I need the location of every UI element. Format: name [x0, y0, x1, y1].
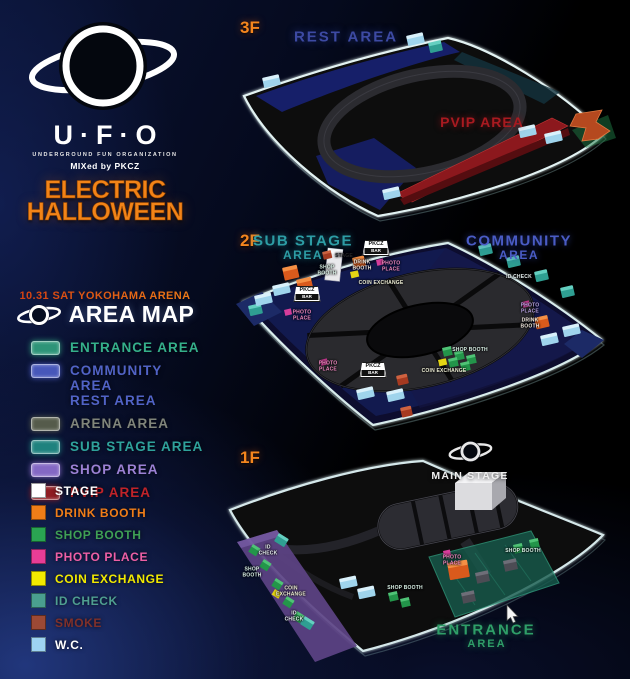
map-label: SHOP BOOTH [317, 265, 336, 276]
pvip-area-label: PVIP AREA [440, 114, 524, 130]
pkcz-bar-chip: PKCZBAR [294, 286, 321, 302]
floor-2f-map [230, 232, 630, 442]
map-label: DRINK BOOTH [352, 260, 371, 271]
map-label: PHOTO PLACE [319, 361, 338, 372]
map-label: PHOTO PLACE [382, 261, 401, 272]
floor-1f-label: 1F [240, 448, 260, 468]
pkcz-bar-chip-top: PKCZ [361, 363, 386, 370]
entrance-area-label-line2: AREA [467, 638, 506, 650]
map-label: SHOP BOOTH [242, 567, 261, 578]
map-label: ID CHECK [506, 275, 532, 281]
pkcz-bar-chip-top: PKCZ [364, 241, 389, 248]
event-area-map-poster: U·F·O UNDERGROUND FUN ORGANIZATION MIXed… [0, 0, 630, 679]
map-label: PHOTO PLACE [443, 555, 462, 566]
community-area-label-line2: AREA [499, 248, 539, 262]
rest-area-label: REST AREA [294, 29, 398, 46]
planet-icon [447, 438, 493, 465]
map-label: PHOTO PLACE [521, 303, 540, 314]
pkcz-bar-chip-bottom: BAR [365, 248, 388, 254]
sub-stage-area-label-line1: SUB STAGE [253, 233, 353, 250]
sub-stage-area-label-line2: AREA [283, 248, 323, 262]
map-label: COIN EXCHANGE [276, 586, 306, 597]
floor-maps: 3F 2F 1F REST AREA PVIP AREA SUB STAGE A… [0, 0, 630, 679]
floor-1f-map [225, 445, 630, 670]
map-label: COIN EXCHANGE [359, 281, 404, 287]
pkcz-bar-chip-bottom: BAR [362, 370, 385, 376]
main-stage-label: MAIN STAGE [431, 470, 508, 482]
map-label: STAGE [335, 254, 353, 260]
pkcz-bar-chip-top: PKCZ [295, 287, 320, 294]
map-label: PHOTO PLACE [293, 310, 312, 321]
map-label: DRINK BOOTH [520, 318, 539, 329]
pkcz-bar-chip: PKCZBAR [360, 362, 387, 378]
community-area-label-line1: COMMUNITY [466, 233, 572, 250]
map-label: ID CHECK [259, 545, 278, 556]
map-label: SHOP BOOTH [505, 549, 541, 555]
map-label: COIN EXCHANGE [422, 369, 467, 375]
floor-3f-label: 3F [240, 18, 260, 38]
entrance-area-label-line1: ENTRANCE [436, 622, 535, 639]
main-stage-marker: MAIN STAGE [431, 438, 508, 482]
cursor-icon [507, 605, 518, 623]
pkcz-bar-chip-bottom: BAR [296, 294, 319, 300]
map-label: SHOP BOOTH [452, 348, 488, 354]
floor-3f-map [230, 18, 630, 223]
map-label: ID CHECK [285, 611, 304, 622]
pkcz-bar-chip: PKCZBAR [363, 240, 390, 256]
map-label: SHOP BOOTH [387, 586, 423, 592]
